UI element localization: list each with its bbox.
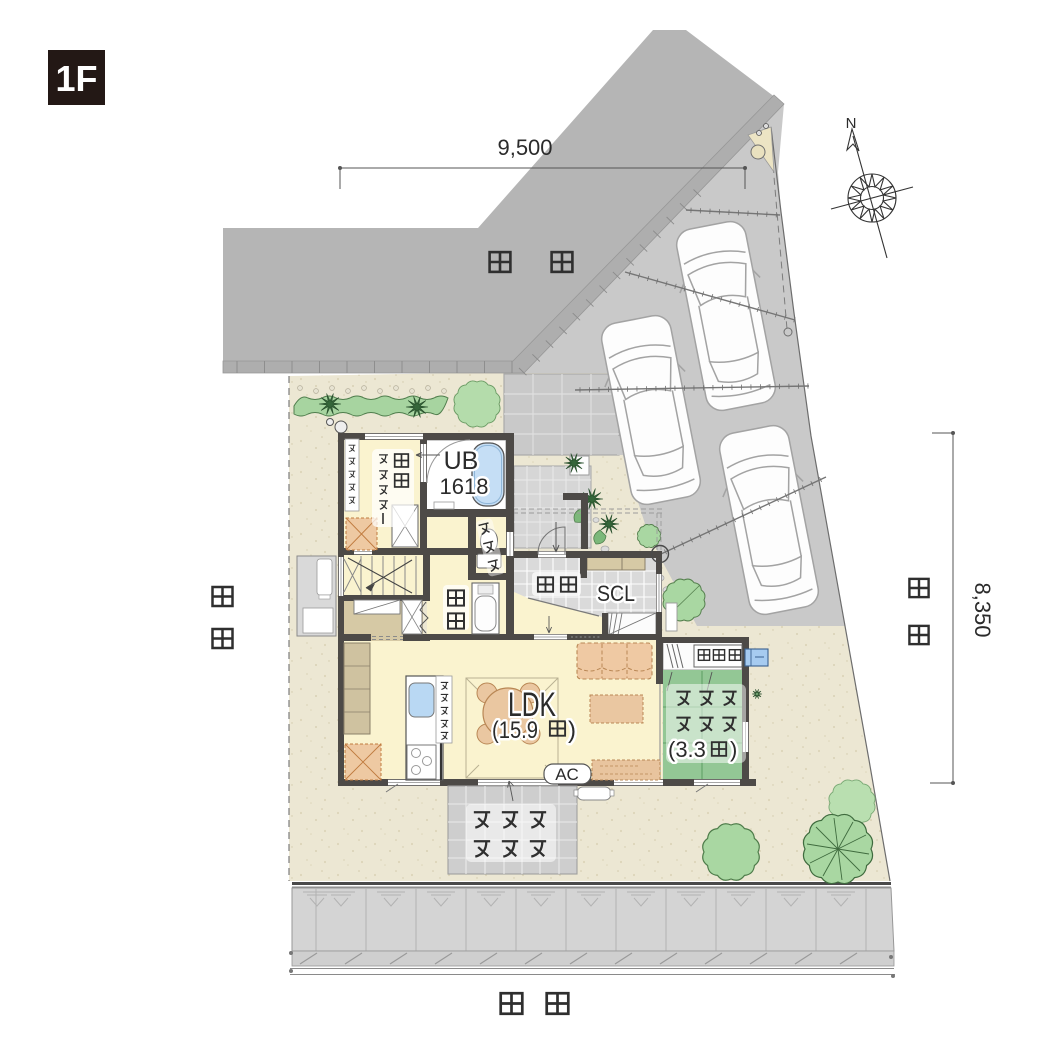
svg-text:): ) <box>568 717 576 744</box>
svg-text:SCL: SCL <box>597 581 635 606</box>
svg-text:UB: UB <box>444 447 479 475</box>
svg-text:N: N <box>846 115 857 132</box>
svg-text:(3.3: (3.3 <box>668 737 706 762</box>
svg-text:1618: 1618 <box>440 474 489 499</box>
svg-text:): ) <box>730 737 737 762</box>
svg-text:AC: AC <box>555 765 579 784</box>
svg-text:9,500: 9,500 <box>497 135 552 160</box>
svg-text:(15.9: (15.9 <box>492 717 538 744</box>
svg-text:1F: 1F <box>55 58 97 99</box>
svg-text:8,350: 8,350 <box>970 582 995 637</box>
